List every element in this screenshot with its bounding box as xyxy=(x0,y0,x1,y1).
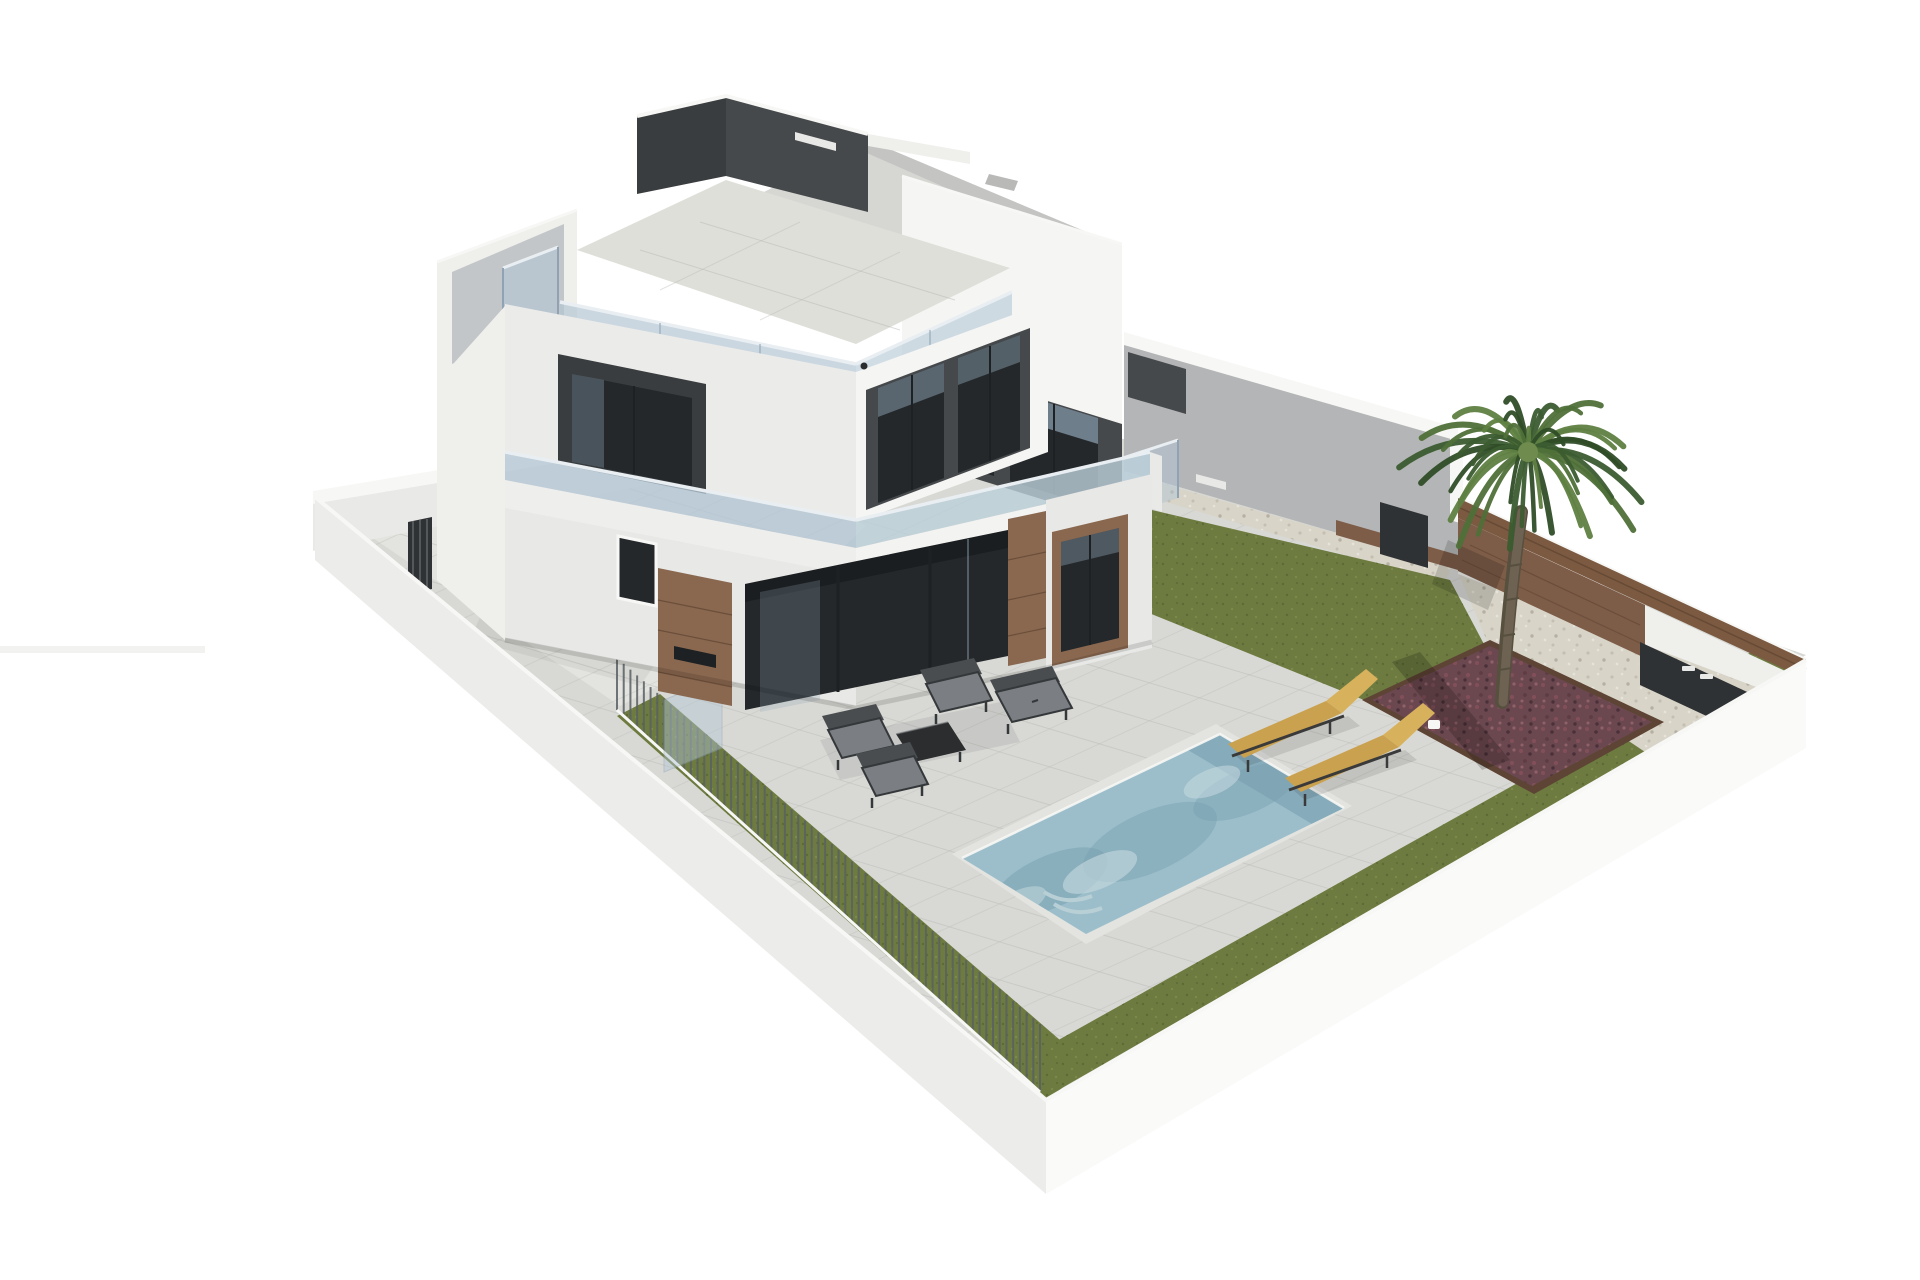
left-artifact-line xyxy=(0,646,205,653)
wall-light xyxy=(861,363,868,370)
gf-wood-panel xyxy=(658,568,732,706)
porch-wood-pillar xyxy=(1008,511,1046,666)
villa-scene xyxy=(0,0,1920,1280)
gf-wood-framed-door xyxy=(1052,514,1128,666)
rendered-image xyxy=(0,0,1920,1280)
garden-light xyxy=(1428,720,1440,729)
gf-window xyxy=(618,536,656,606)
